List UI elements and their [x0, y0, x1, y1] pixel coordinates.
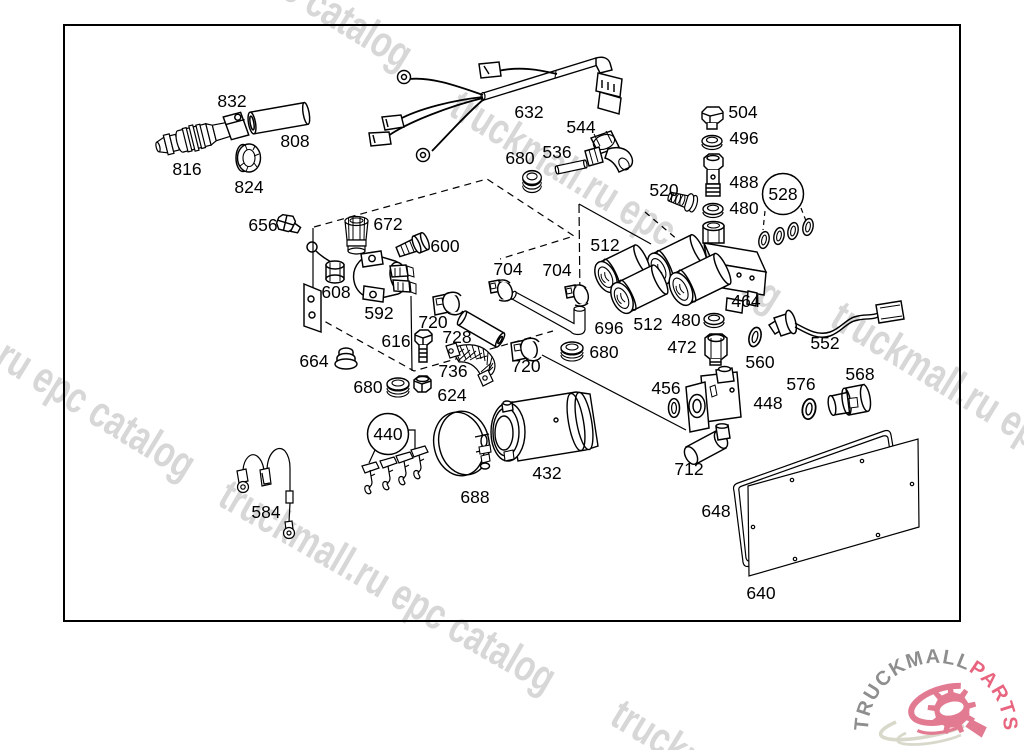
svg-text:704: 704	[493, 259, 522, 279]
svg-text:truckmall.ru epc catalog: truckmall.ru epc catalog	[72, 0, 422, 79]
svg-text:560: 560	[745, 352, 774, 372]
svg-text:480: 480	[671, 310, 700, 330]
svg-text:584: 584	[251, 502, 280, 522]
svg-text:688: 688	[460, 487, 489, 507]
svg-text:536: 536	[542, 142, 571, 162]
svg-text:704: 704	[542, 260, 571, 280]
svg-text:592: 592	[364, 303, 393, 323]
svg-text:664: 664	[299, 351, 328, 371]
svg-text:616: 616	[381, 331, 410, 351]
svg-text:720: 720	[511, 356, 540, 376]
svg-text:truckmall.ru epc catalog: truckmall.ru epc catalog	[0, 249, 204, 489]
svg-text:608: 608	[321, 282, 350, 302]
svg-text:464: 464	[731, 291, 760, 311]
svg-text:432: 432	[532, 463, 561, 483]
svg-text:672: 672	[373, 214, 402, 234]
svg-text:824: 824	[234, 177, 263, 197]
svg-text:544: 544	[566, 117, 595, 137]
svg-text:512: 512	[590, 235, 619, 255]
svg-text:640: 640	[746, 583, 775, 603]
svg-text:680: 680	[505, 148, 534, 168]
svg-text:512: 512	[633, 314, 662, 334]
svg-text:808: 808	[280, 131, 309, 151]
svg-text:504: 504	[728, 102, 757, 122]
svg-text:680: 680	[353, 377, 382, 397]
svg-text:696: 696	[594, 318, 623, 338]
svg-text:456: 456	[651, 378, 680, 398]
svg-text:736: 736	[438, 361, 467, 381]
svg-text:448: 448	[753, 393, 782, 413]
svg-text:488: 488	[729, 172, 758, 192]
svg-text:552: 552	[810, 333, 839, 353]
svg-text:632: 632	[514, 102, 543, 122]
svg-text:600: 600	[430, 236, 459, 256]
svg-text:648: 648	[701, 501, 730, 521]
svg-text:440: 440	[373, 424, 402, 444]
svg-text:520: 520	[649, 180, 678, 200]
svg-text:816: 816	[172, 159, 201, 179]
svg-text:576: 576	[786, 374, 815, 394]
svg-text:832: 832	[217, 91, 246, 111]
svg-text:624: 624	[437, 385, 466, 405]
svg-text:528: 528	[768, 184, 797, 204]
svg-text:680: 680	[589, 342, 618, 362]
svg-text:712: 712	[674, 459, 703, 479]
svg-text:496: 496	[729, 128, 758, 148]
svg-text:568: 568	[845, 364, 874, 384]
svg-text:728: 728	[442, 327, 471, 347]
svg-text:472: 472	[667, 337, 696, 357]
svg-text:656: 656	[248, 215, 277, 235]
svg-text:480: 480	[729, 198, 758, 218]
